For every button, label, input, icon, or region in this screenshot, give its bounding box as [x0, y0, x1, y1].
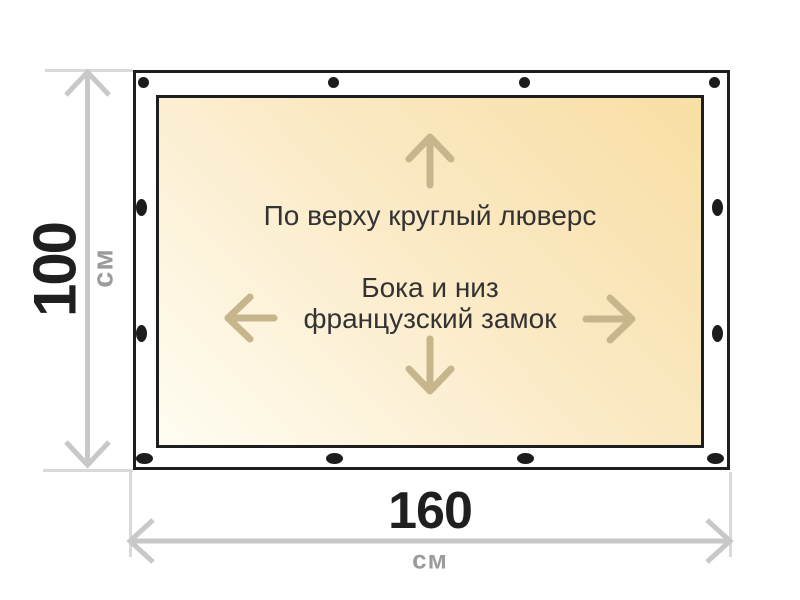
- arrow-up-icon: [404, 131, 456, 189]
- width-value: 160: [388, 481, 472, 541]
- grommet-dot: [712, 199, 723, 216]
- note-sides-lock-line2: французский замок: [156, 303, 704, 334]
- height-unit: см: [88, 248, 121, 288]
- note-top-grommets: По верху круглый люверс: [156, 200, 704, 231]
- grommet-dot: [707, 453, 724, 464]
- grommet-dot: [328, 77, 339, 88]
- grommet-dot: [712, 325, 723, 342]
- banner-dimension-diagram: По верху круглый люверс Бока и низ франц…: [0, 0, 800, 600]
- grommet-dot: [136, 199, 147, 216]
- grommet-dot: [136, 453, 153, 464]
- arrow-down-icon: [404, 335, 456, 397]
- height-value: 100: [21, 223, 90, 317]
- width-unit: см: [412, 545, 448, 576]
- grommet-dot: [709, 77, 720, 88]
- note-sides-lock-line1: Бока и низ: [156, 272, 704, 303]
- grommet-dot: [517, 453, 534, 464]
- grommet-dot: [519, 77, 530, 88]
- grommet-dot: [138, 77, 149, 88]
- grommet-dot: [326, 453, 343, 464]
- note-sides-lock: Бока и низ французский замок: [156, 272, 704, 334]
- grommet-dot: [136, 325, 147, 342]
